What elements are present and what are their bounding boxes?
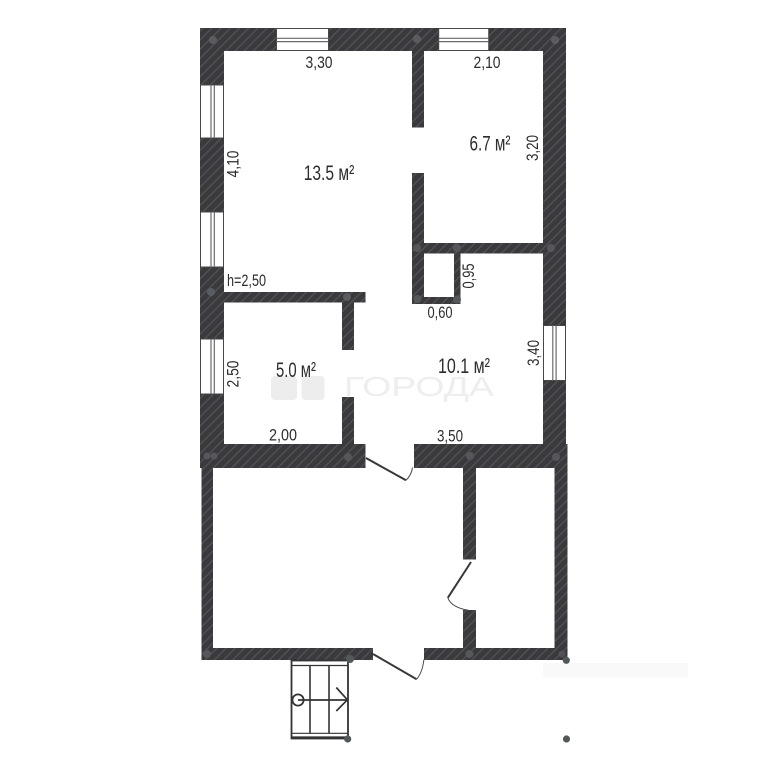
svg-text:5.0 м²: 5.0 м² — [276, 359, 316, 382]
svg-text:0,95: 0,95 — [460, 264, 478, 289]
svg-text:2,00: 2,00 — [269, 427, 297, 445]
svg-text:2,50: 2,50 — [225, 361, 243, 388]
svg-text:4,10: 4,10 — [225, 151, 243, 178]
svg-text:3,40: 3,40 — [525, 340, 543, 366]
svg-text:3,50: 3,50 — [437, 428, 463, 446]
svg-text:2,10: 2,10 — [474, 54, 501, 72]
svg-text:3,30: 3,30 — [306, 54, 333, 72]
svg-text:3,20: 3,20 — [524, 135, 542, 161]
svg-text:0,60: 0,60 — [428, 304, 453, 322]
svg-text:6.7 м²: 6.7 м² — [470, 133, 511, 156]
svg-text:10.1 м²: 10.1 м² — [438, 355, 490, 378]
svg-text:13.5 м²: 13.5 м² — [304, 162, 355, 185]
svg-text:h=2,50: h=2,50 — [227, 272, 266, 290]
